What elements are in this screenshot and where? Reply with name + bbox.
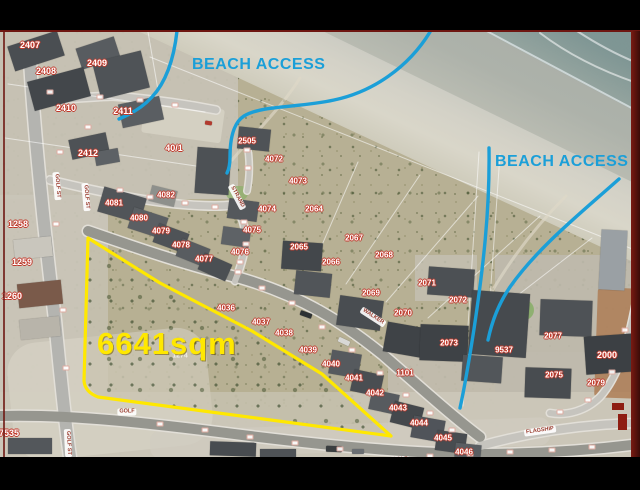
plot-area-label: 6641sqm xyxy=(97,326,237,362)
street-label-golf-st: GOLF ST xyxy=(64,429,72,457)
photo-border-left xyxy=(3,31,5,457)
beach-access-label-left: BEACH ACCESS xyxy=(192,56,325,74)
red-edge-mark xyxy=(612,403,624,410)
street-label-walker: WALKER xyxy=(359,306,386,327)
red-edge-mark xyxy=(618,414,627,430)
street-label-golf: GOLF xyxy=(117,409,136,416)
street-label-golf-st: GOLF ST xyxy=(52,172,61,200)
street-label-flagship: FLAGSHIP xyxy=(524,425,556,436)
beach-access-label-right: BEACH ACCESS xyxy=(495,153,628,171)
street-label-golf-st: GOLF ST xyxy=(81,183,90,211)
letterbox-bar-bottom xyxy=(0,457,640,490)
street-label-strand: STRAND xyxy=(228,183,247,210)
photo-border-right xyxy=(631,31,640,457)
letterbox-bar-top xyxy=(0,0,640,30)
aerial-map-screenshot: { "annotations": { "area_label": "6641sq… xyxy=(0,0,640,490)
photo-border-top xyxy=(0,30,640,32)
